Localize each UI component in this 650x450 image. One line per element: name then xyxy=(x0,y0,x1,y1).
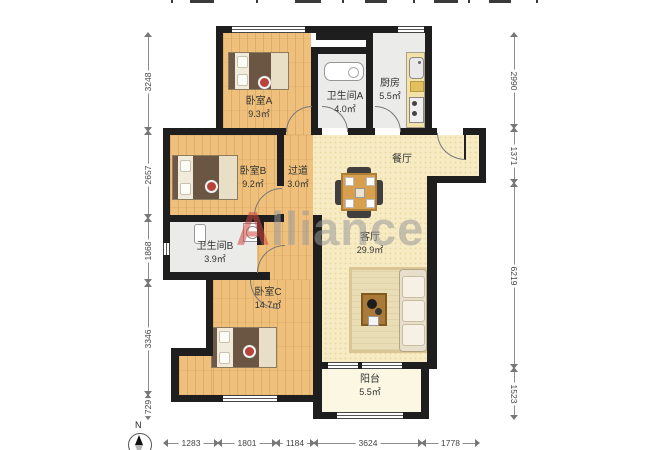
dim-bottom-5: 1778 xyxy=(422,437,479,449)
sofa xyxy=(399,269,427,352)
wall xyxy=(311,47,318,135)
window-living-balcony-1 xyxy=(328,362,358,369)
room-area: 3.9㎡ xyxy=(197,254,234,265)
wall xyxy=(206,272,213,356)
dim-right-3: 6219 xyxy=(508,183,520,368)
wall xyxy=(427,176,437,369)
room-name: 卧室C xyxy=(254,287,281,300)
room-area: 9.3㎡ xyxy=(246,109,273,120)
watermark-rest: lliance xyxy=(271,202,424,255)
wall xyxy=(421,362,429,419)
plate xyxy=(345,177,354,186)
wall xyxy=(163,128,170,222)
room-name: 厨房 xyxy=(379,78,401,91)
window-bathroom-b xyxy=(163,243,170,255)
wall xyxy=(425,26,432,135)
room-area: 4.0㎡ xyxy=(327,104,364,115)
wall xyxy=(223,128,286,135)
compass-needle-north xyxy=(135,435,143,445)
window-balcony xyxy=(337,412,403,419)
bed-pillows xyxy=(178,156,193,199)
dim-bottom-2: 1801 xyxy=(218,437,276,449)
wall xyxy=(479,128,486,183)
dim-left-5: 729 xyxy=(142,395,154,419)
window-bedroom-a xyxy=(232,26,305,33)
dim-left-4: 3346 xyxy=(142,283,154,395)
wall xyxy=(311,128,322,135)
window-bedroom-c xyxy=(223,395,277,402)
compass-north-label: N xyxy=(135,420,142,430)
room-area: 3.0㎡ xyxy=(287,179,309,190)
watermark-alliance: Alliance xyxy=(236,201,424,256)
room-name: 卧室A xyxy=(246,96,273,109)
bed-pillows xyxy=(235,53,249,89)
wall xyxy=(163,128,223,135)
wall xyxy=(163,272,270,280)
coffee-table xyxy=(361,293,387,326)
room-name: 卫生间A xyxy=(327,91,364,104)
room-name: 过道 xyxy=(287,166,309,179)
bed-bedroom-b xyxy=(172,155,238,200)
window-kitchen xyxy=(398,26,424,33)
room-label-kitchen: 厨房 5.5㎡ xyxy=(379,78,401,102)
room-name: 卧室B xyxy=(240,166,267,179)
decor-dot xyxy=(258,76,271,89)
dim-right-1: 2990 xyxy=(508,33,520,128)
room-area: 5.5㎡ xyxy=(359,387,381,398)
plate xyxy=(366,177,375,186)
room-label-bedroom-c: 卧室C 14.7㎡ xyxy=(254,287,281,311)
stove xyxy=(409,97,424,123)
room-label-bathroom-b: 卫生间B 3.9㎡ xyxy=(197,241,234,265)
watermark-letter-a: A xyxy=(236,202,271,255)
window-living-balcony-2 xyxy=(362,362,402,369)
decor-dot xyxy=(243,345,256,358)
wall-flue-block xyxy=(316,26,366,40)
wall xyxy=(400,128,437,135)
room-name: 餐厅 xyxy=(392,154,412,167)
wall xyxy=(277,128,284,186)
bed-pillows xyxy=(217,328,233,367)
dim-bottom-1: 1283 xyxy=(164,437,218,449)
room-area: 14.7㎡ xyxy=(254,300,281,311)
kitchen-counter xyxy=(406,52,425,128)
wall xyxy=(366,33,373,135)
centerpiece xyxy=(355,188,365,198)
bed-foot xyxy=(259,328,276,367)
wall xyxy=(216,26,223,135)
floorplan-canvas: 卧室A 9.3㎡ 卫生间A 4.0㎡ 厨房 5.5㎡ 卧室B 9.2㎡ 过道 3… xyxy=(0,0,650,450)
room-area: 5.5㎡ xyxy=(379,91,401,102)
bathtub-bathroom-a xyxy=(324,62,364,81)
floor-bedroom-c-ext xyxy=(179,356,213,395)
dim-bottom-4: 3624 xyxy=(314,437,422,449)
dim-left-2: 2657 xyxy=(142,131,154,218)
decor-dot xyxy=(205,180,218,193)
compass-needle-south xyxy=(135,445,143,450)
room-name: 阳台 xyxy=(359,374,381,387)
room-label-hallway: 过道 3.0㎡ xyxy=(287,166,309,190)
wall xyxy=(171,348,179,402)
sink xyxy=(409,57,424,79)
wall xyxy=(348,128,375,135)
dim-left-3: 1868 xyxy=(142,218,154,283)
bed-foot xyxy=(271,53,288,89)
room-area: 9.2㎡ xyxy=(240,179,267,190)
dim-bottom-3: 1184 xyxy=(276,437,314,449)
bed-blanket xyxy=(193,156,219,199)
dim-left-1: 3248 xyxy=(142,33,154,131)
room-label-balcony: 阳台 5.5㎡ xyxy=(359,374,381,398)
dim-right-2: 1371 xyxy=(508,128,520,183)
room-label-dining: 餐厅 xyxy=(392,154,412,167)
room-label-bedroom-a: 卧室A 9.3㎡ xyxy=(246,96,273,120)
room-label-bathroom-a: 卫生间A 4.0㎡ xyxy=(327,91,364,115)
faucet xyxy=(418,61,421,64)
bed-foot xyxy=(219,156,237,199)
room-label-bedroom-b: 卧室B 9.2㎡ xyxy=(240,166,267,190)
dim-right-4: 1523 xyxy=(508,368,520,419)
wall xyxy=(311,47,373,54)
room-name: 卫生间B xyxy=(197,241,234,254)
